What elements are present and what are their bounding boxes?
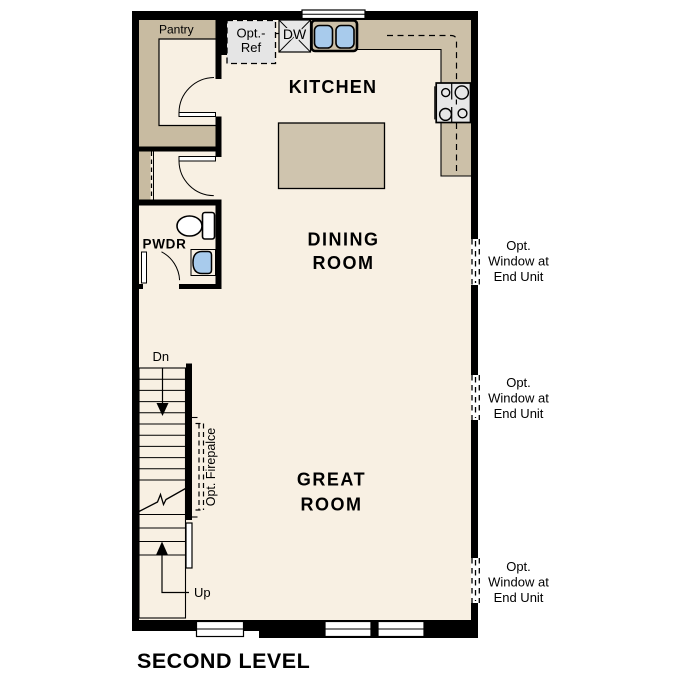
svg-text:DW: DW <box>283 26 307 42</box>
svg-text:KITCHEN: KITCHEN <box>289 77 377 97</box>
svg-text:Opt.: Opt. <box>506 559 531 574</box>
svg-text:Up: Up <box>194 585 211 600</box>
svg-text:Opt.: Opt. <box>506 375 531 390</box>
svg-text:Window at: Window at <box>488 575 549 590</box>
svg-text:Window at: Window at <box>488 254 549 269</box>
svg-text:SECOND LEVEL: SECOND LEVEL <box>137 649 310 673</box>
svg-text:DINING: DINING <box>308 230 380 250</box>
svg-text:End Unit: End Unit <box>494 406 544 421</box>
svg-text:ROOM: ROOM <box>301 495 363 515</box>
svg-text:ROOM: ROOM <box>313 253 375 273</box>
svg-text:GREAT: GREAT <box>297 470 366 490</box>
svg-text:PWDR: PWDR <box>143 237 187 252</box>
svg-text:End Unit: End Unit <box>494 590 544 605</box>
svg-text:Opt.: Opt. <box>506 238 531 253</box>
svg-text:Opt.-: Opt.- <box>237 26 266 41</box>
svg-text:Ref: Ref <box>241 40 262 55</box>
svg-text:Window at: Window at <box>488 390 549 405</box>
svg-text:Opt. Firepalce: Opt. Firepalce <box>204 428 218 507</box>
svg-text:Pantry: Pantry <box>159 23 194 37</box>
svg-text:End Unit: End Unit <box>494 269 544 284</box>
svg-text:Dn: Dn <box>153 349 170 364</box>
